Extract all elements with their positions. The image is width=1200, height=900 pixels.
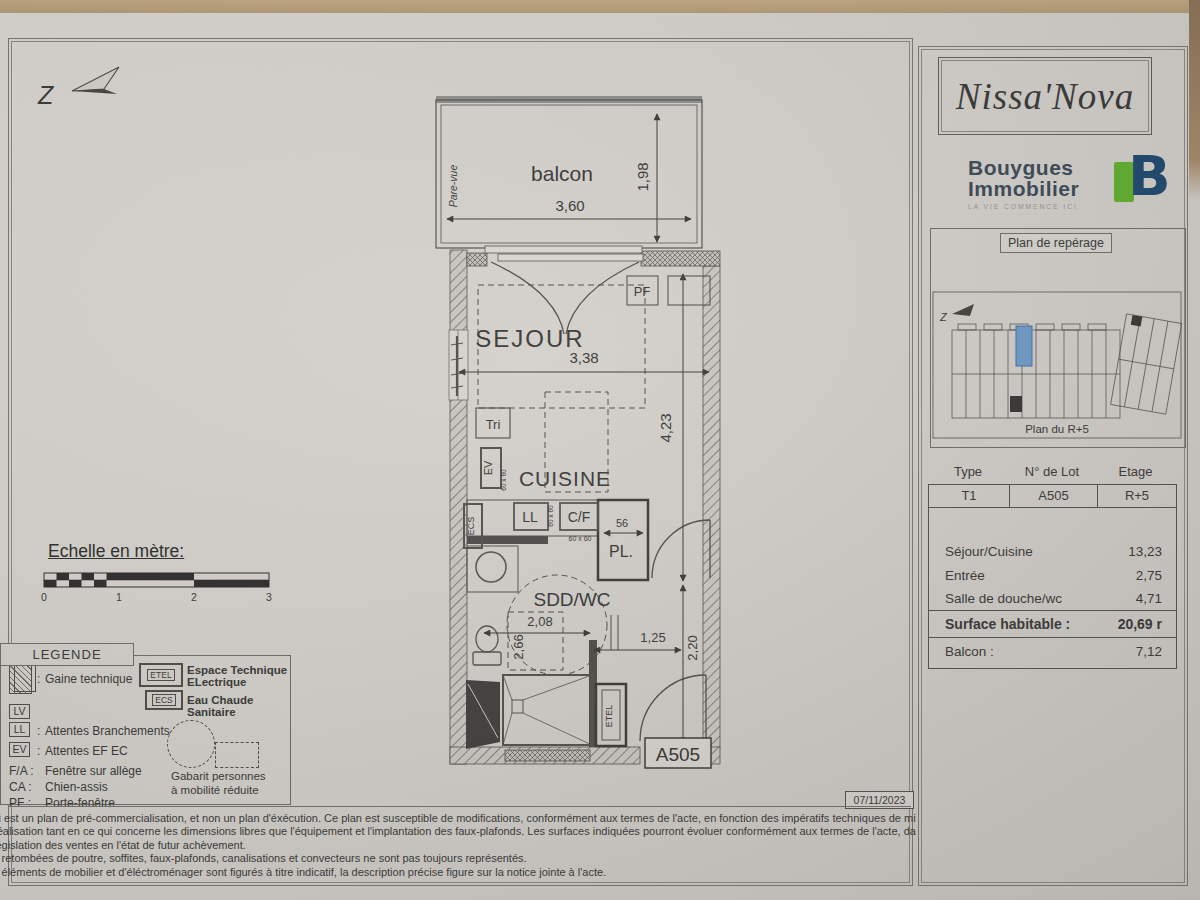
- lot-table-row: T1 A505 R+5: [928, 484, 1177, 508]
- toilet-bowl: [476, 626, 498, 652]
- dim-sdd-height: 2,66: [511, 634, 526, 659]
- pf-label: PF: [634, 284, 651, 299]
- legend-attentes-ef-ec: Attentes EF EC: [45, 744, 128, 758]
- tri-label: Tri: [486, 417, 501, 432]
- balcony-value: 7,12: [1136, 644, 1162, 659]
- window-left: [449, 330, 468, 400]
- lot-number-cell: A505: [1010, 485, 1098, 507]
- legend-etel-label: Espace Technique ELectrique: [187, 664, 287, 688]
- etel-abbr: ETEL: [147, 669, 174, 681]
- disclaimer-line: ci est un plan de pré-commercialisation,…: [0, 812, 916, 825]
- developer-logo-mark: B: [1114, 157, 1166, 215]
- north-letter: Z: [37, 81, 54, 109]
- developer-logo: Bouygues Immobilier LA VIE COMMENCE ICI …: [968, 157, 1168, 219]
- gaine-technique-icon: [9, 662, 32, 694]
- shower-tray: [503, 675, 592, 745]
- divider: [929, 637, 1176, 638]
- surface-label: Séjour/Cuisine: [945, 544, 1033, 559]
- slider-panel-1: [485, 246, 642, 253]
- ev-label: EV: [482, 460, 494, 475]
- disclaimer-line: réalisation tant en ce qui concerne les …: [0, 825, 916, 838]
- legend-ecs-label: Eau Chaude Sanitaire: [187, 694, 290, 718]
- french-door-left: [491, 262, 564, 334]
- toilet-tank: [473, 652, 501, 665]
- surface-label: Salle de douche/wc: [945, 591, 1062, 606]
- french-door-right: [566, 262, 639, 334]
- ecs-abbr: ECS: [152, 694, 175, 706]
- north-arrow-outline: [72, 67, 119, 91]
- scale-title: Echelle en mètre:: [48, 541, 184, 562]
- colon: :: [37, 672, 40, 686]
- legend-gaine-label: Gaine technique: [45, 672, 132, 686]
- ll-size: 60 x 60: [547, 505, 554, 527]
- legend: : Gaine technique ETEL Espace Technique …: [0, 655, 291, 805]
- surface-label: Entrée: [945, 568, 985, 583]
- ll-label: LL: [522, 509, 538, 525]
- surface-table: Séjour/Cuisine 13,23 Entrée 2,75 Salle d…: [928, 507, 1177, 669]
- surface-total-value: 20,69 r: [1118, 616, 1162, 632]
- lot-type: T1: [929, 485, 1010, 507]
- locator-plan-box: [930, 228, 1186, 448]
- closet-label: PL.: [609, 543, 633, 560]
- disclaimer-line: législation des ventes en l'état de futu…: [0, 839, 916, 852]
- legend-attentes-branchements: Attentes Branchements: [45, 724, 170, 738]
- wall-top-xhatch-left: [467, 253, 487, 266]
- surface-row: Entrée 2,75: [945, 568, 1162, 583]
- etel-label: ETEL: [604, 705, 614, 728]
- balcony-label: balcon: [531, 162, 593, 185]
- inner-door-arc: [652, 520, 710, 578]
- sdd-label: SDD/WC: [533, 589, 610, 610]
- header-etage: Etage: [1096, 464, 1175, 479]
- pare-vue-label: Pare-vue: [447, 165, 459, 208]
- pmr-gabarit-rect-icon: [215, 742, 259, 768]
- legend-chien-assis: Chien-assis: [45, 780, 108, 794]
- north-arrow: Z: [37, 67, 119, 109]
- entry-door-arc: [640, 675, 706, 741]
- ev-size: 60 x 60: [500, 469, 507, 491]
- surface-total-label: Surface habitable :: [945, 616, 1070, 632]
- fa-abbr: F/A :: [9, 764, 34, 778]
- lot-table-headers: Type N° de Lot Etage: [928, 464, 1175, 479]
- disclaimer-line: s retombées de poutre, soffites, faux-pl…: [0, 852, 916, 865]
- divider: [8, 806, 911, 807]
- surface-value: 13,23: [1128, 544, 1162, 559]
- scale-tick-1: 1: [116, 591, 122, 603]
- surface-value: 2,75: [1136, 568, 1162, 583]
- floorplan-photo: Z Pare-vue balcon 3,60 1,98: [0, 0, 1200, 900]
- developer-name-line1: Bouygues: [968, 157, 1106, 178]
- lot-number: A505: [656, 744, 700, 765]
- dim-closet: 56: [616, 517, 628, 529]
- project-name: Nissa'Nova: [956, 75, 1134, 118]
- ll-abbr: LL: [9, 722, 30, 737]
- partition-sdd-top: [467, 536, 548, 544]
- surface-total-row: Surface habitable : 20,69 r: [945, 616, 1162, 632]
- dim-entry-width: 1,25: [640, 630, 665, 645]
- wall-bottom-xhatch: [505, 750, 590, 761]
- logo-b-letter: B: [1128, 143, 1171, 208]
- cuisine-label: CUISINE: [519, 467, 611, 490]
- etel-label-line2: ELectrique: [187, 676, 287, 688]
- pf-abbr: PF :: [9, 796, 31, 810]
- slider-panel-2: [498, 254, 643, 261]
- cf-size: 60 x 60: [569, 535, 592, 542]
- legend-porte-fenetre: Porte-fenêtre: [45, 796, 115, 810]
- desk-edge: [1189, 0, 1200, 200]
- header-lot: N° de Lot: [1008, 464, 1096, 479]
- balcony-row: Balcon : 7,12: [945, 644, 1162, 659]
- etel-icon: ETEL: [139, 663, 183, 687]
- dim-sdd-width: 2,08: [527, 614, 552, 629]
- scale-tick-3: 3: [266, 591, 272, 603]
- surface-row: Séjour/Cuisine 13,23: [945, 544, 1162, 559]
- closet-walls: [598, 500, 648, 580]
- shower-slopes: [503, 675, 592, 745]
- dim-balcony-depth: 1,98: [634, 162, 651, 191]
- wall-top-xhatch-right: [641, 251, 720, 266]
- locator-plan-title: Plan de repérage: [1000, 233, 1112, 253]
- ecs-icon: ECS: [145, 690, 183, 710]
- scale-tick-0: 0: [41, 591, 47, 603]
- legend-fenetre-allege: Fenêtre sur allège: [45, 764, 142, 778]
- developer-name-line2: Immobilier: [968, 178, 1106, 199]
- legend-gabarit-line1: Gabarit personnes: [171, 770, 266, 782]
- lot-floor: R+5: [1098, 485, 1176, 507]
- header-type: Type: [928, 464, 1008, 479]
- divider: [929, 610, 1176, 611]
- scale-tick-2: 2: [191, 591, 197, 603]
- dim-main-height: 4,23: [657, 413, 674, 442]
- ev-abbr: EV: [9, 742, 30, 757]
- pmr-gabarit-circle-icon: [167, 720, 215, 768]
- disclaimer: ci est un plan de pré-commercialisation,…: [0, 812, 916, 879]
- surface-value: 4,71: [1136, 591, 1162, 606]
- colon: :: [37, 744, 40, 758]
- dim-balcony-width: 3,60: [555, 197, 584, 214]
- disclaimer-line: s éléments de mobilier et d'éléctroménag…: [0, 866, 916, 879]
- surface-row: Salle de douche/wc 4,71: [945, 591, 1162, 606]
- cf-label: C/F: [568, 509, 591, 525]
- ecs-label: ECS: [466, 517, 476, 536]
- ca-abbr: CA :: [9, 780, 32, 794]
- etel-label-line1: Espace Technique: [187, 664, 287, 676]
- shower-drain: [512, 700, 523, 713]
- legend-title: LEGENDE: [0, 643, 134, 666]
- dim-sejour: 3,38: [569, 349, 598, 366]
- scale-bar: 0 1 2 3: [40, 569, 280, 605]
- legend-gabarit-line2: à mobilité réduite: [171, 784, 259, 796]
- developer-tagline: LA VIE COMMENCE ICI: [968, 203, 1106, 210]
- colon: :: [37, 724, 40, 738]
- locator-plan-caption: Plan du R+5: [933, 423, 1181, 435]
- basin-circle: [476, 552, 506, 582]
- basin-cabinet: [467, 546, 518, 592]
- dim-entry-height: 2,20: [685, 635, 700, 660]
- lv-abbr: LV: [9, 704, 30, 719]
- sejour-label: SEJOUR: [475, 325, 584, 352]
- balcony-label: Balcon :: [945, 644, 994, 659]
- project-logo-box: Nissa'Nova: [938, 57, 1152, 135]
